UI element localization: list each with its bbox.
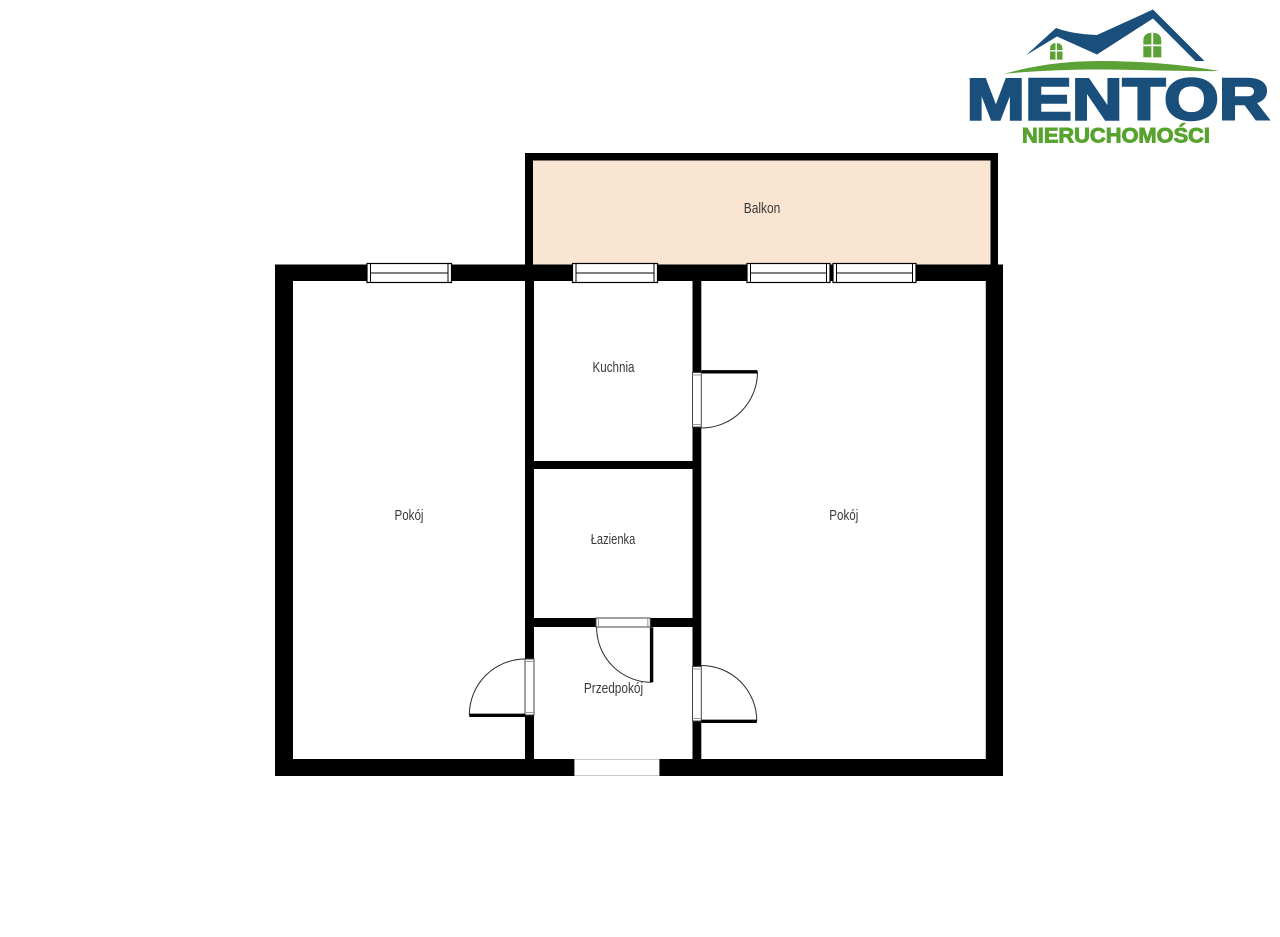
svg-text:Kuchnia: Kuchnia (593, 359, 636, 376)
svg-text:Balkon: Balkon (744, 200, 781, 217)
svg-text:Łazienka: Łazienka (591, 531, 636, 548)
svg-text:NIERUCHOMOŚCI: NIERUCHOMOŚCI (1022, 124, 1210, 148)
svg-text:MENTOR: MENTOR (967, 68, 1270, 133)
svg-text:Przedpokój: Przedpokój (584, 680, 643, 697)
svg-text:Pokój: Pokój (395, 507, 424, 524)
svg-text:Pokój: Pokój (829, 507, 858, 524)
